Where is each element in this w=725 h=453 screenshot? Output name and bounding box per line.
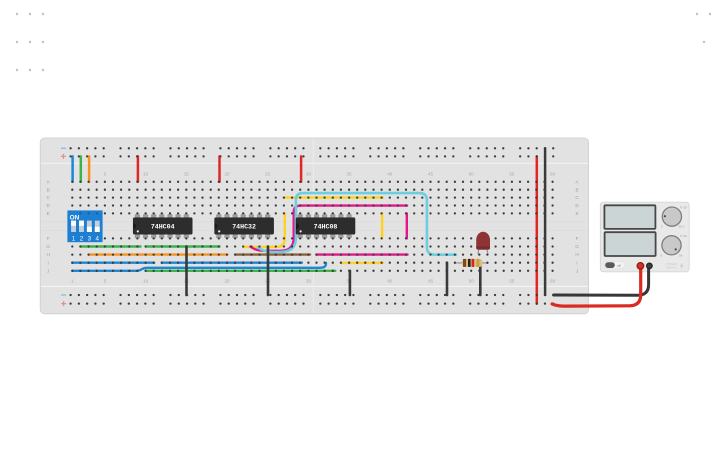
svg-text:45: 45	[428, 171, 434, 176]
svg-text:I: I	[576, 260, 577, 265]
svg-text:ON: ON	[70, 214, 80, 221]
svg-text:25: 25	[265, 171, 271, 176]
svg-text:I: I	[48, 260, 49, 265]
svg-text:15: 15	[184, 171, 190, 176]
svg-text:F: F	[47, 236, 50, 241]
svg-text:74HC08: 74HC08	[314, 224, 338, 231]
svg-text:↻ 5A: ↻ 5A	[680, 234, 687, 238]
svg-text:50: 50	[469, 279, 475, 284]
svg-text:20: 20	[224, 279, 230, 284]
svg-text:5: 5	[104, 171, 107, 176]
svg-text:10: 10	[143, 279, 149, 284]
svg-text:E: E	[575, 211, 578, 216]
svg-text:45: 45	[428, 279, 434, 284]
svg-text:1: 1	[71, 279, 74, 284]
svg-text:F: F	[576, 236, 579, 241]
svg-text:30.1: 30.1	[679, 225, 685, 229]
svg-text:60: 60	[550, 171, 556, 176]
svg-text:4: 4	[96, 236, 100, 243]
svg-text:55: 55	[509, 279, 515, 284]
svg-text:J: J	[576, 268, 578, 273]
svg-text:74HC32: 74HC32	[232, 224, 256, 231]
svg-text:G: G	[575, 244, 579, 249]
svg-text:30: 30	[306, 171, 312, 176]
svg-text:off: off	[617, 264, 621, 268]
svg-text:1: 1	[72, 236, 76, 243]
svg-text:G: G	[46, 244, 50, 249]
svg-text:3: 3	[88, 236, 92, 243]
svg-text:E: E	[47, 211, 50, 216]
svg-text:2: 2	[80, 236, 84, 243]
svg-text:74HC04: 74HC04	[151, 224, 175, 231]
svg-text:↻ 30: ↻ 30	[680, 205, 687, 209]
svg-text:50: 50	[469, 171, 475, 176]
svg-text:10: 10	[143, 171, 149, 176]
svg-text:35: 35	[347, 171, 353, 176]
svg-text:J: J	[47, 268, 49, 273]
svg-text:40: 40	[387, 279, 393, 284]
svg-text:H: H	[47, 252, 50, 257]
svg-text:SUPPLY: SUPPLY	[666, 266, 678, 270]
svg-text:H: H	[575, 252, 578, 257]
svg-text:55: 55	[509, 171, 515, 176]
svg-text:30: 30	[306, 279, 312, 284]
svg-text:40: 40	[387, 171, 393, 176]
svg-text:5: 5	[104, 279, 107, 284]
svg-text:B: B	[47, 187, 50, 192]
svg-text:5A: 5A	[679, 254, 683, 258]
svg-text:60: 60	[550, 279, 556, 284]
svg-text:20: 20	[224, 171, 230, 176]
svg-text:B: B	[575, 187, 578, 192]
